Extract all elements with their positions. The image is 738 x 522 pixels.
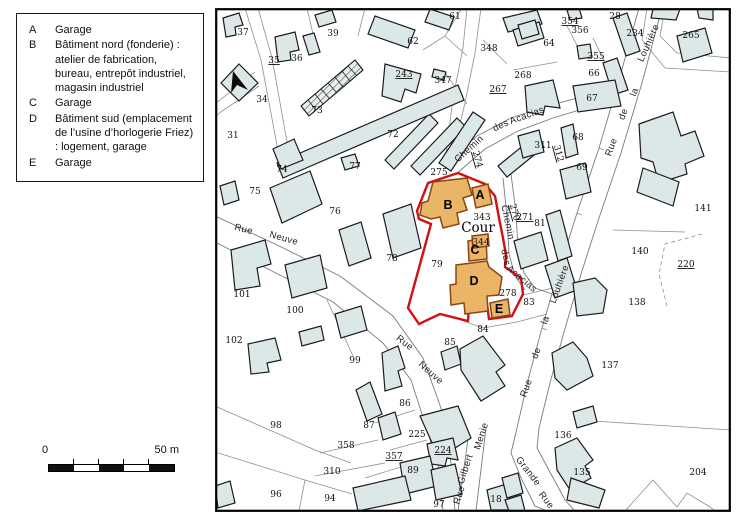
- parcel-number: 357: [385, 452, 402, 462]
- building: [315, 10, 336, 27]
- north-arrow: [221, 64, 258, 101]
- parcel-number: 136: [554, 431, 571, 441]
- parcel-number: 311: [534, 141, 551, 151]
- parcel-number: 356: [571, 26, 588, 36]
- legend-text: Garage: [55, 23, 195, 37]
- building: [378, 412, 401, 440]
- parcel-number: 81: [534, 219, 545, 229]
- parcel-line: [307, 8, 313, 34]
- building: [356, 382, 382, 421]
- parcel-number: 61: [449, 12, 460, 22]
- parcel-line: [577, 213, 582, 215]
- legend-item-d: D Bâtiment sud (emplacement de l’usine d…: [29, 112, 195, 155]
- parcel-number: 39: [327, 29, 339, 39]
- parcel-number: 355: [587, 52, 604, 62]
- building: [303, 33, 320, 55]
- parcel-number: 243: [395, 70, 412, 80]
- building: [546, 210, 572, 261]
- parcel-number: 84: [477, 325, 489, 335]
- building-letter: D: [469, 274, 478, 288]
- building: [552, 342, 593, 390]
- parcel-number: 224: [434, 446, 451, 456]
- parcel-line: [625, 480, 715, 511]
- street-name: Gilbert: [456, 453, 476, 486]
- parcel-number: 66: [588, 69, 600, 79]
- parcel-number: 67: [586, 94, 598, 104]
- parcel-number: 101: [233, 290, 250, 300]
- parcel-number: 68: [572, 133, 584, 143]
- parcel-line: [299, 480, 305, 511]
- parcel-line: [215, 406, 351, 463]
- parcel-line: [513, 62, 557, 70]
- parcel-number: 312: [551, 144, 565, 163]
- scale-end-label: 50 m: [155, 444, 179, 456]
- parcel-line: [258, 8, 289, 153]
- parcel-number: 85: [444, 338, 456, 348]
- parcel-number: 76: [329, 207, 341, 217]
- parcel-number: 31: [227, 131, 238, 141]
- legend-key: B: [29, 38, 55, 52]
- parcel-line: [599, 148, 604, 150]
- parcel-number: 96: [270, 490, 282, 500]
- parcel-number: 267: [489, 85, 506, 95]
- building: [231, 240, 271, 290]
- parcel-number: 28: [609, 12, 621, 22]
- building-letter: A: [475, 188, 484, 202]
- parcel-number: 37: [237, 28, 249, 38]
- parcel-number: 275: [430, 168, 447, 178]
- parcel-number: 138: [628, 298, 645, 308]
- parcel-line: [593, 421, 731, 430]
- legend-key: C: [29, 96, 55, 110]
- building: [248, 338, 281, 374]
- legend-item-e: E Garage: [29, 156, 195, 170]
- buildings-layer: [215, 8, 713, 511]
- parcel-number: 86: [399, 399, 411, 409]
- parcel-number: 18: [490, 495, 502, 505]
- parcel-number: 99: [349, 356, 361, 366]
- building: [382, 346, 405, 391]
- parcel-number: 271: [516, 213, 533, 223]
- parcel-number: 83: [523, 298, 535, 308]
- parcel-number: 35: [268, 56, 280, 66]
- legend-text: Bâtiment sud (emplacement de l’usine d’h…: [55, 112, 195, 155]
- scale-bar: 0 50 m: [42, 444, 182, 472]
- parcel-number: 141: [694, 204, 711, 214]
- legend-item-a: A Garage: [29, 23, 195, 37]
- street-name: de: [617, 107, 631, 121]
- parcel-number: 79: [431, 260, 443, 270]
- parcel-number: 73: [311, 106, 323, 116]
- area-label: Cour: [461, 220, 495, 236]
- parcel-number: 89: [407, 466, 419, 476]
- parcel-number: 64: [543, 39, 555, 49]
- building: [220, 181, 239, 205]
- street-name: Rue: [518, 378, 535, 399]
- parcel-number: 78: [386, 254, 398, 264]
- legend-text: Garage: [55, 156, 195, 170]
- legend-panel: A Garage B Bâtiment nord (fonderie) : at…: [16, 13, 204, 182]
- scale-bar-segments: [48, 464, 175, 472]
- legend-key: D: [29, 112, 55, 126]
- building: [215, 481, 235, 508]
- parcel-number: 62: [407, 37, 418, 47]
- parcel-number: 87: [363, 421, 375, 431]
- building: [285, 255, 327, 298]
- building: [573, 278, 607, 316]
- building: [514, 232, 548, 269]
- street-name: Rue: [233, 222, 254, 237]
- parcel-number: 77: [349, 162, 361, 172]
- street-name: Neuve: [416, 359, 445, 387]
- parcel-number: 225: [408, 430, 425, 440]
- parcel-line: [390, 440, 427, 450]
- building: [383, 204, 421, 258]
- street-name: Rue: [603, 137, 620, 158]
- parcel-number: 137: [601, 361, 618, 371]
- parcel-number: 265: [682, 31, 699, 41]
- parcel-number: 34: [256, 95, 268, 105]
- street-name: la: [628, 86, 641, 98]
- building-letter: E: [495, 302, 503, 316]
- street-name: de: [530, 346, 544, 360]
- building: [573, 406, 597, 428]
- legend-item-b: B Bâtiment nord (fonderie) : atelier de …: [29, 38, 195, 95]
- cadastral-map: 3739353634317374777262612433473483543562…: [215, 8, 731, 512]
- building-letter: C: [470, 243, 479, 257]
- building: [299, 326, 324, 346]
- building: [335, 306, 367, 338]
- scale-bar-labels: 0 50 m: [42, 444, 179, 456]
- parcel-line: [613, 230, 685, 232]
- parcel-number: 348: [480, 44, 497, 54]
- parcel-number: 278: [499, 289, 516, 299]
- parcel-number: 268: [514, 71, 531, 81]
- parcel-number: 74: [276, 165, 288, 175]
- parcel-number: 94: [324, 494, 336, 504]
- building: [270, 171, 322, 223]
- parcel-number: 140: [631, 247, 648, 257]
- parcel-number: 234: [626, 29, 643, 39]
- parcel-number: 75: [249, 187, 261, 197]
- parcel-number: 100: [286, 306, 303, 316]
- building: [277, 85, 464, 178]
- building: [460, 336, 505, 401]
- parcel-number: 347: [434, 76, 451, 86]
- parcel-line: [659, 234, 702, 306]
- legend-text: Bâtiment nord (fonderie) : atelier de fa…: [55, 38, 195, 95]
- parcel-line: [542, 328, 547, 330]
- building-letter: B: [443, 198, 452, 212]
- street-name: Neuve: [268, 229, 299, 248]
- parcel-number: 36: [291, 54, 303, 64]
- parcel-line: [358, 8, 365, 36]
- building: [353, 476, 411, 511]
- legend-key: E: [29, 156, 55, 170]
- parcel-number: 204: [689, 468, 706, 478]
- scale-bar-graphic: [48, 459, 173, 472]
- parcel-number: 97: [433, 500, 445, 510]
- building: [339, 222, 371, 266]
- building: [567, 478, 605, 508]
- parcel-line: [365, 467, 401, 478]
- legend-item-c: C Garage: [29, 96, 195, 110]
- parcel-number: 102: [225, 336, 242, 346]
- area-labels-layer: Cour: [461, 220, 495, 236]
- legend-key: A: [29, 23, 55, 37]
- street-name: Menie: [472, 421, 491, 451]
- parcel-number: 358: [337, 441, 354, 451]
- parcel-number: 98: [270, 421, 282, 431]
- building: [441, 346, 461, 370]
- parcel-number: 69: [576, 163, 588, 173]
- parcel-number: 135: [573, 468, 590, 478]
- parcel-number: 72: [387, 130, 398, 140]
- building: [651, 9, 680, 20]
- parcel-number: 220: [677, 260, 694, 270]
- parcel-number: 310: [323, 467, 340, 477]
- street-name: la: [539, 314, 552, 326]
- scale-start-label: 0: [42, 444, 48, 456]
- legend-text: Garage: [55, 96, 195, 110]
